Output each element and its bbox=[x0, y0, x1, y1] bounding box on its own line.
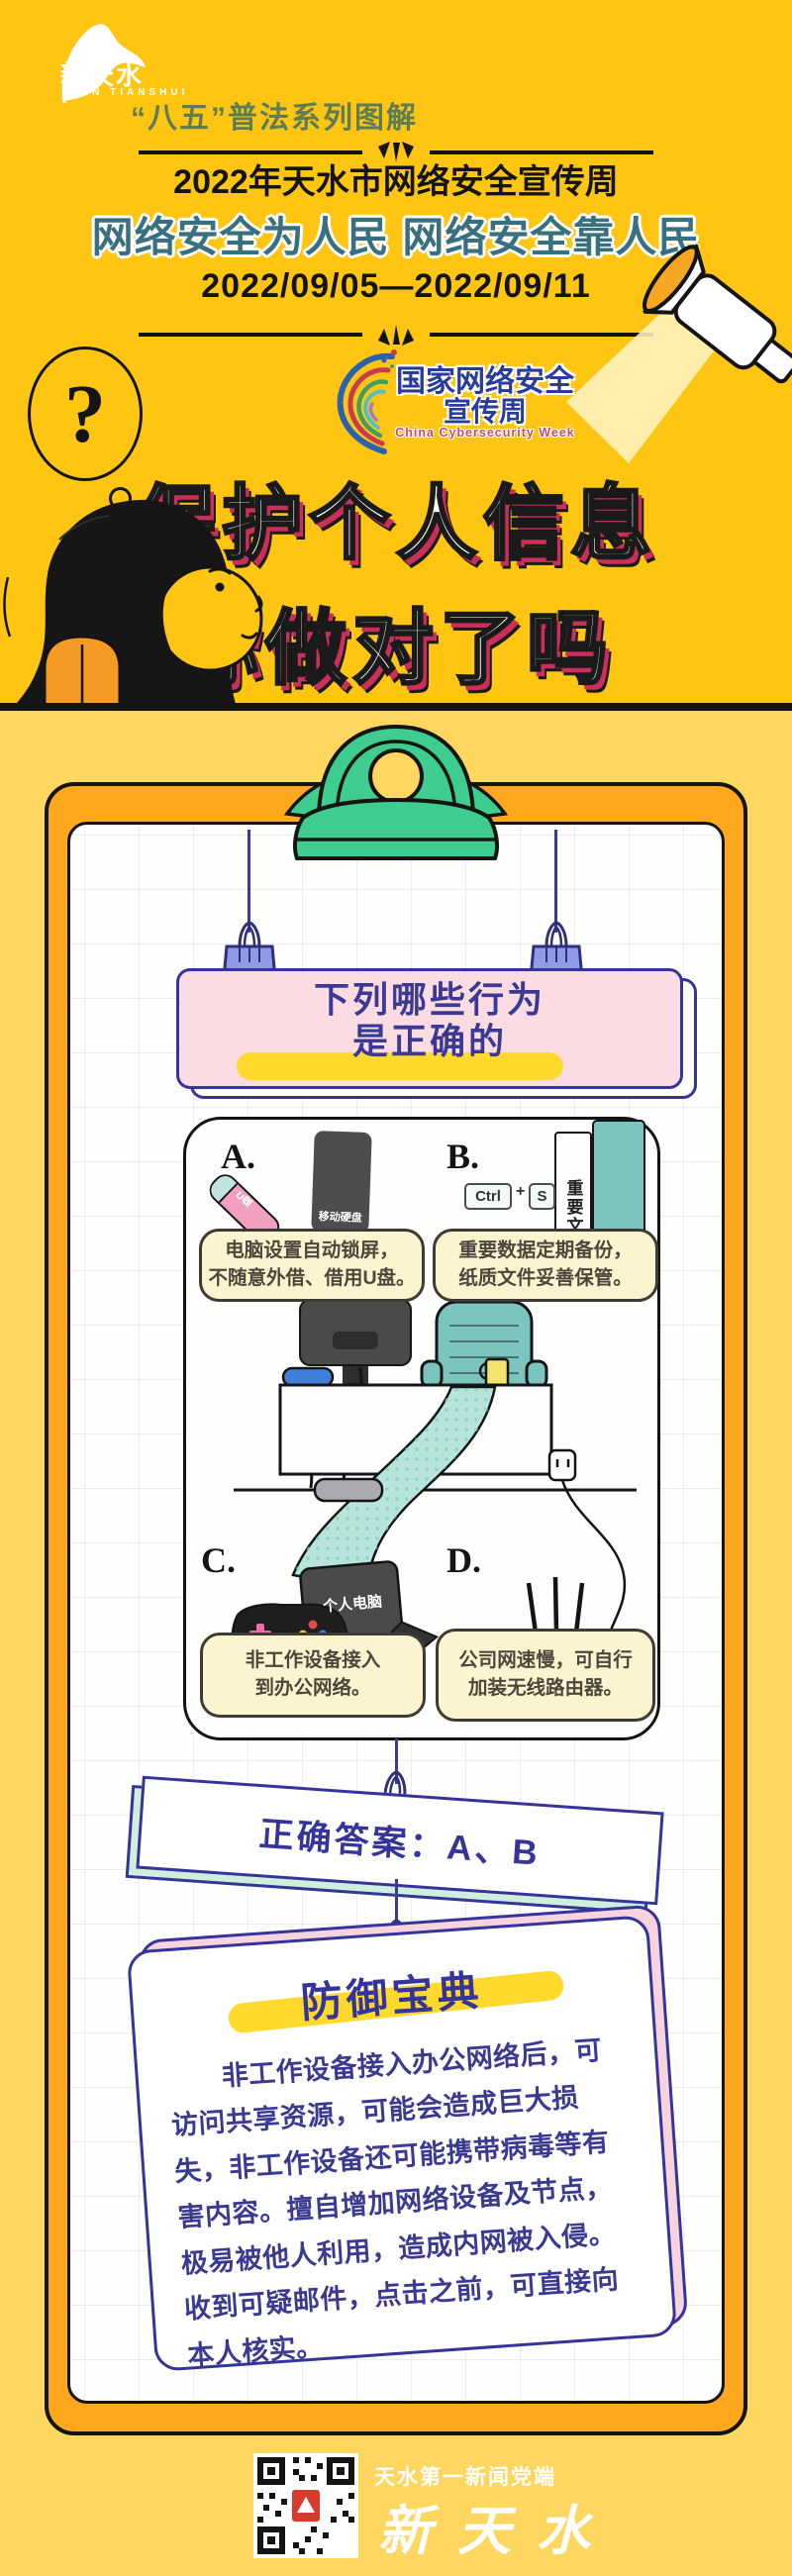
event-title: 2022年天水市网络安全宣传周 bbox=[0, 154, 792, 203]
guide-title: 防御宝典 bbox=[132, 1945, 651, 2041]
option-a-label: A. bbox=[221, 1136, 255, 1177]
poster: 新天水 XIN TIANSHUI “八五”普法系列图解 2022年天水市网络安全… bbox=[0, 0, 792, 2576]
footer-brand: 新天水 bbox=[378, 2487, 616, 2565]
portable-drive-icon: 移动硬盘 bbox=[311, 1131, 372, 1234]
clipboard-clip-icon bbox=[257, 715, 535, 863]
hanging-string bbox=[247, 830, 250, 933]
ctrl-key-icon: Ctrl bbox=[464, 1183, 512, 1210]
question-line1: 下列哪些行为 bbox=[179, 979, 680, 1021]
flashlight-icon bbox=[535, 226, 792, 473]
option-c-bubble: 非工作设备接入 到办公网络。 bbox=[200, 1633, 426, 1718]
drive-label: 移动硬盘 bbox=[312, 1208, 370, 1226]
question-line2: 是正确的 bbox=[179, 1021, 680, 1062]
series-title: “八五”普法系列图解 bbox=[131, 93, 418, 137]
guide-body: 非工作设备接入办公网络后，可访问共享资源，可能会造成巨大损失，非工作设备还可能携… bbox=[166, 2026, 645, 2378]
spark-marks-icon bbox=[376, 323, 416, 347]
s-key-icon: S bbox=[529, 1183, 555, 1210]
options-panel: A. 移动硬盘 U盘 B. 重要文件 Ctrl + S 电脑设置自动锁屏， 不随… bbox=[183, 1117, 660, 1740]
woman-illustration bbox=[0, 460, 277, 711]
option-d-bubble: 公司网速慢，可自行 加装无线路由器。 bbox=[436, 1629, 655, 1722]
hanging-string bbox=[554, 830, 557, 933]
section-separator bbox=[0, 703, 792, 711]
defense-guide-card: 防御宝典 非工作设备接入办公网络后，可访问共享资源，可能会造成巨大损失，非工作设… bbox=[127, 1915, 677, 2372]
option-b-label: B. bbox=[446, 1136, 479, 1177]
option-b-bubble: 重要数据定期备份， 纸质文件妥善保管。 bbox=[433, 1229, 658, 1302]
qr-code bbox=[253, 2453, 358, 2558]
option-d-label: D. bbox=[446, 1539, 481, 1581]
guide-card: 防御宝典 非工作设备接入办公网络后，可访问共享资源，可能会造成巨大损失，非工作设… bbox=[127, 1915, 677, 2372]
question-mark: ? bbox=[64, 366, 106, 462]
option-c-label: C. bbox=[201, 1539, 236, 1581]
plus-sign: + bbox=[516, 1183, 525, 1201]
option-a-bubble: 电脑设置自动锁屏， 不随意外借、借用U盘。 bbox=[199, 1229, 425, 1302]
question-card: 下列哪些行为 是正确的 bbox=[176, 968, 683, 1089]
